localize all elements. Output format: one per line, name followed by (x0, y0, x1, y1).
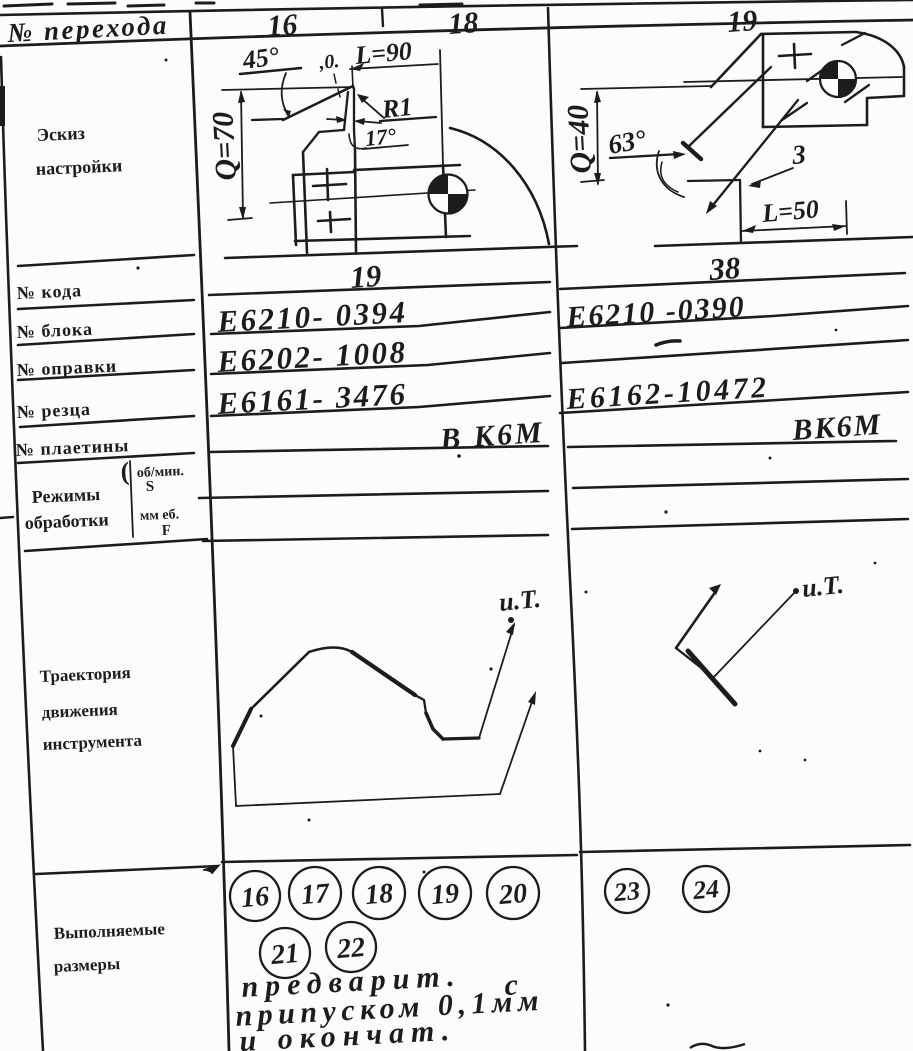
svg-text:движения: движения (41, 700, 118, 722)
svg-text:3: 3 (790, 139, 807, 170)
svg-text:Режимы: Режимы (31, 484, 100, 507)
svg-text:18: 18 (447, 6, 479, 41)
svg-text:38: 38 (707, 250, 742, 287)
svg-text:Траектория: Траектория (39, 663, 131, 686)
svg-text:16: 16 (266, 8, 298, 43)
svg-text:№ резца: № резца (16, 399, 91, 422)
svg-text:и.Т.: и.Т. (801, 570, 846, 603)
svg-text:,0.: ,0. (317, 50, 340, 74)
svg-text:F: F (161, 523, 171, 539)
svg-text:20: 20 (497, 878, 529, 911)
svg-text:Q=70: Q=70 (206, 111, 243, 181)
svg-text:№ кода: № кода (16, 280, 82, 303)
svg-text:16: 16 (240, 881, 271, 914)
svg-text:23: 23 (612, 876, 641, 907)
svg-text:(: ( (120, 457, 130, 486)
svg-text:настройки: настройки (35, 155, 122, 179)
svg-text:Q=40: Q=40 (561, 104, 598, 174)
svg-text:мм еб.: мм еб. (140, 507, 180, 524)
svg-text:об/мин.: об/мин. (137, 464, 185, 481)
svg-text:ВК6М: ВК6М (790, 408, 883, 447)
svg-text:22: 22 (335, 932, 367, 965)
svg-text:21: 21 (269, 938, 301, 971)
svg-text:24: 24 (691, 874, 720, 905)
svg-text:обработки: обработки (24, 509, 109, 533)
svg-text:и.Т.: и.Т. (498, 584, 543, 617)
svg-text:19: 19 (349, 258, 382, 295)
svg-text:№ блока: № блока (16, 319, 93, 342)
svg-text:L=50: L=50 (760, 194, 820, 228)
svg-text:17: 17 (300, 878, 332, 911)
svg-text:Эскиз: Эскиз (36, 123, 85, 145)
svg-text:размеры: размеры (53, 954, 120, 976)
svg-text:19: 19 (430, 878, 461, 911)
svg-text:19: 19 (726, 4, 758, 39)
svg-text:18: 18 (364, 878, 395, 911)
svg-text:S: S (145, 479, 154, 495)
